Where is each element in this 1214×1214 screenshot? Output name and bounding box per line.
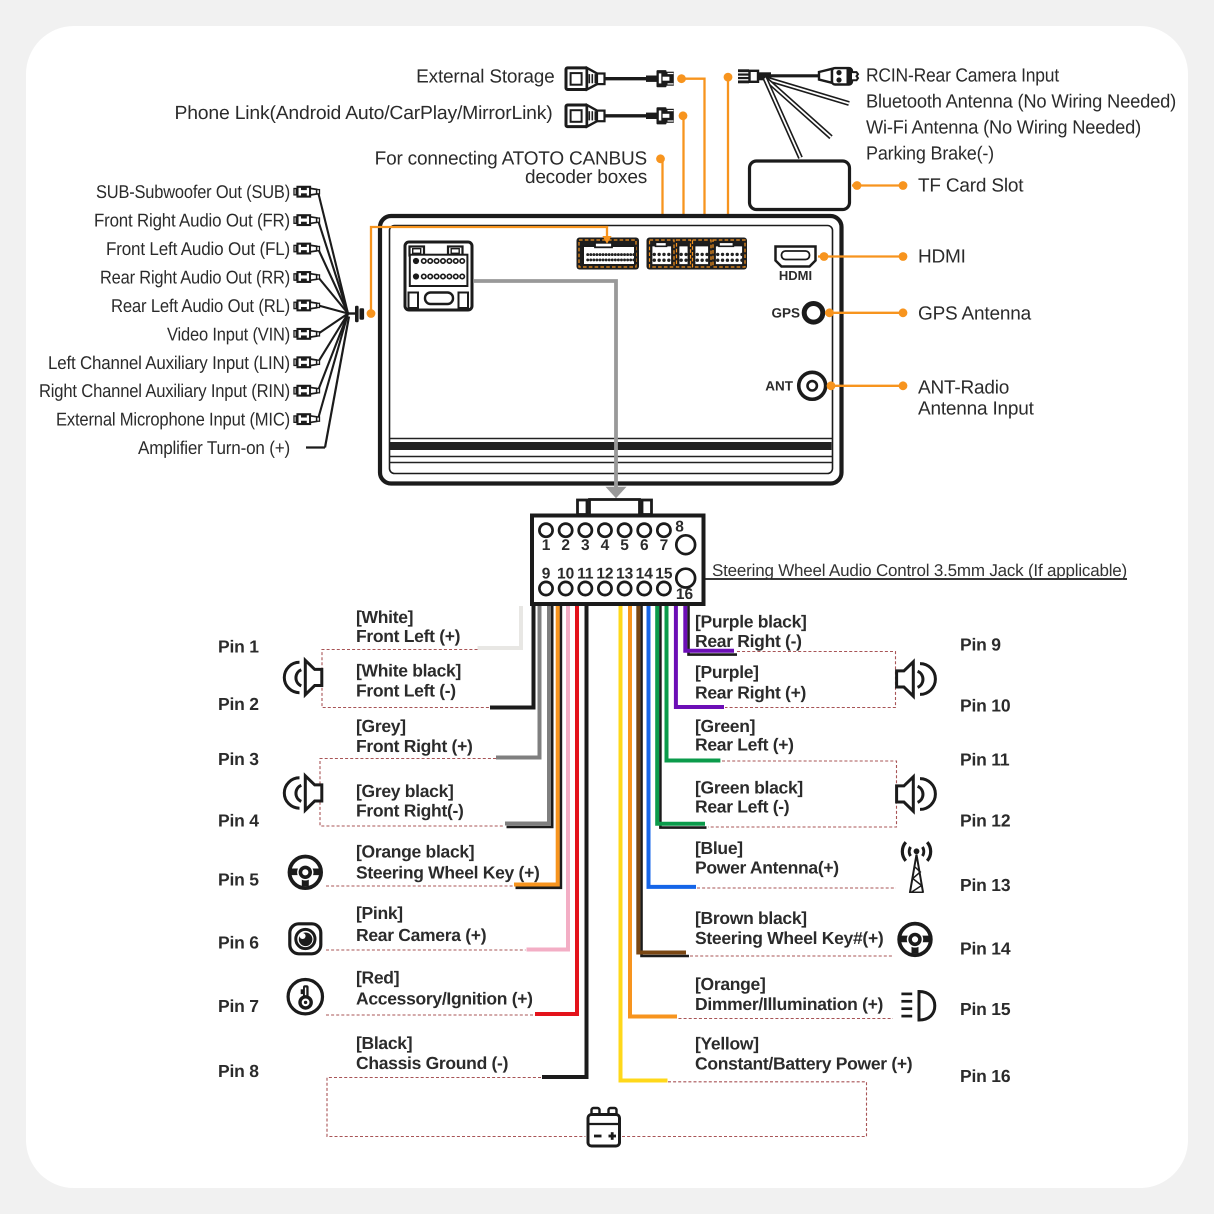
- svg-text:Front Left (+): Front Left (+): [356, 626, 460, 646]
- svg-text:Pin 12: Pin 12: [960, 810, 1011, 830]
- svg-text:ANT-Radio: ANT-Radio: [918, 378, 1009, 399]
- svg-text:Chassis Ground (-): Chassis Ground (-): [356, 1053, 508, 1073]
- svg-text:Front Left (-): Front Left (-): [356, 680, 456, 700]
- svg-text:11: 11: [577, 566, 594, 583]
- svg-text:[Black]: [Black]: [356, 1033, 412, 1053]
- svg-text:[White]: [White]: [356, 607, 413, 627]
- svg-text:Amplifier Turn-on (+): Amplifier Turn-on (+): [138, 437, 290, 458]
- svg-text:Power Antenna(+): Power Antenna(+): [695, 857, 839, 877]
- svg-text:Bluetooth Antenna (No Wiring N: Bluetooth Antenna (No Wiring Needed): [866, 92, 1176, 113]
- svg-text:Rear Left (+): Rear Left (+): [695, 735, 794, 755]
- svg-text:Front Right(-): Front Right(-): [356, 801, 464, 821]
- svg-text:Video Input (VIN): Video Input (VIN): [167, 323, 290, 344]
- svg-text:Pin 15: Pin 15: [960, 999, 1011, 1019]
- svg-text:Pin 8: Pin 8: [218, 1061, 259, 1081]
- svg-text:Left Channel Auxiliary Input (: Left Channel Auxiliary Input (LIN): [48, 352, 290, 373]
- svg-text:[Purple]: [Purple]: [695, 662, 759, 682]
- svg-text:Accessory/Ignition (+): Accessory/Ignition (+): [356, 988, 533, 1008]
- svg-text:[Purple black]: [Purple black]: [695, 612, 807, 632]
- svg-text:Rear Left (-): Rear Left (-): [695, 797, 789, 817]
- svg-text:14: 14: [636, 566, 654, 583]
- svg-text:Pin 10: Pin 10: [960, 696, 1011, 716]
- svg-text:GPS: GPS: [771, 306, 800, 321]
- svg-text:Wi-Fi Antenna (No Wiring Neede: Wi-Fi Antenna (No Wiring Needed): [866, 118, 1141, 139]
- svg-text:HDMI: HDMI: [779, 268, 812, 283]
- svg-text:Steering Wheel Key (+): Steering Wheel Key (+): [356, 863, 540, 883]
- svg-text:[Pink]: [Pink]: [356, 903, 403, 923]
- svg-text:8: 8: [675, 519, 684, 536]
- svg-text:2: 2: [561, 537, 570, 554]
- svg-text:12: 12: [596, 566, 613, 583]
- svg-text:Rear Camera (+): Rear Camera (+): [356, 925, 486, 945]
- svg-text:Pin 6: Pin 6: [218, 933, 259, 953]
- svg-text:Pin 11: Pin 11: [960, 750, 1010, 770]
- svg-text:Parking Brake(-): Parking Brake(-): [866, 144, 994, 165]
- svg-text:Front Right Audio Out (FR): Front Right Audio Out (FR): [94, 210, 290, 231]
- svg-text:Constant/Battery Power (+): Constant/Battery Power (+): [695, 1054, 912, 1074]
- svg-text:Pin 3: Pin 3: [218, 749, 259, 769]
- svg-text:[Green]: [Green]: [695, 716, 755, 736]
- svg-text:Rear Right (-): Rear Right (-): [695, 631, 802, 651]
- svg-text:decoder boxes: decoder boxes: [525, 167, 647, 188]
- svg-text:Dimmer/Illumination (+): Dimmer/Illumination (+): [695, 994, 883, 1014]
- svg-text:[White black]: [White black]: [356, 661, 461, 681]
- svg-text:15: 15: [655, 566, 673, 583]
- svg-text:7: 7: [660, 537, 669, 554]
- svg-text:[Orange]: [Orange]: [695, 974, 766, 994]
- svg-text:Pin 4: Pin 4: [218, 811, 259, 831]
- svg-text:Pin 5: Pin 5: [218, 869, 259, 889]
- svg-text:Pin 14: Pin 14: [960, 938, 1011, 958]
- svg-text:Pin 2: Pin 2: [218, 694, 259, 714]
- svg-text:Pin 7: Pin 7: [218, 996, 259, 1016]
- svg-text:9: 9: [542, 566, 551, 583]
- svg-text:5: 5: [620, 537, 629, 554]
- svg-text:Pin 16: Pin 16: [960, 1066, 1011, 1086]
- svg-text:6: 6: [640, 537, 649, 554]
- svg-text:Rear Left Audio Out (RL): Rear Left Audio Out (RL): [111, 295, 290, 316]
- svg-text:Rear Right Audio Out (RR): Rear Right Audio Out (RR): [100, 267, 290, 288]
- svg-text:TF Card Slot: TF Card Slot: [918, 176, 1024, 197]
- svg-text:Front Right (+): Front Right (+): [356, 736, 473, 756]
- svg-text:[Grey]: [Grey]: [356, 716, 406, 736]
- svg-text:4: 4: [601, 537, 610, 554]
- svg-text:Pin 9: Pin 9: [960, 634, 1001, 654]
- svg-text:[Brown black]: [Brown black]: [695, 908, 807, 928]
- svg-text:[Grey black]: [Grey black]: [356, 781, 454, 801]
- svg-text:Rear Right (+): Rear Right (+): [695, 682, 806, 702]
- svg-text:[Green black]: [Green black]: [695, 778, 803, 798]
- svg-text:3: 3: [581, 537, 590, 554]
- svg-text:RCIN-Rear Camera Input: RCIN-Rear Camera Input: [866, 66, 1060, 87]
- svg-text:[Yellow]: [Yellow]: [695, 1034, 759, 1054]
- svg-text:ANT: ANT: [765, 379, 793, 394]
- svg-text:Pin 13: Pin 13: [960, 875, 1011, 895]
- svg-text:Phone Link(Android Auto/CarPla: Phone Link(Android Auto/CarPlay/MirrorLi…: [175, 103, 553, 124]
- svg-text:Antenna Input: Antenna Input: [918, 399, 1035, 420]
- svg-text:HDMI: HDMI: [918, 247, 966, 268]
- svg-text:13: 13: [616, 566, 634, 583]
- svg-text:Steering Wheel Audio Control 3: Steering Wheel Audio Control 3.5mm Jack …: [712, 561, 1127, 580]
- svg-text:[Blue]: [Blue]: [695, 838, 743, 858]
- svg-text:16: 16: [676, 586, 694, 603]
- svg-text:GPS Antenna: GPS Antenna: [918, 304, 1032, 325]
- svg-text:Right Channel Auxiliary Input: Right Channel Auxiliary Input (RIN): [39, 380, 290, 401]
- svg-text:SUB-Subwoofer Out (SUB): SUB-Subwoofer Out (SUB): [96, 181, 290, 202]
- svg-text:Steering Wheel Key#(+): Steering Wheel Key#(+): [695, 928, 883, 948]
- svg-text:External Microphone Input (MIC: External Microphone Input (MIC): [56, 409, 290, 430]
- svg-text:[Orange black]: [Orange black]: [356, 841, 474, 861]
- svg-text:[Red]: [Red]: [356, 967, 399, 987]
- svg-text:1: 1: [542, 537, 551, 554]
- svg-text:Pin 1: Pin 1: [218, 637, 259, 657]
- svg-text:Front Left Audio Out (FL): Front Left Audio Out (FL): [106, 238, 290, 259]
- svg-text:10: 10: [557, 566, 574, 583]
- svg-text:External Storage: External Storage: [416, 67, 554, 88]
